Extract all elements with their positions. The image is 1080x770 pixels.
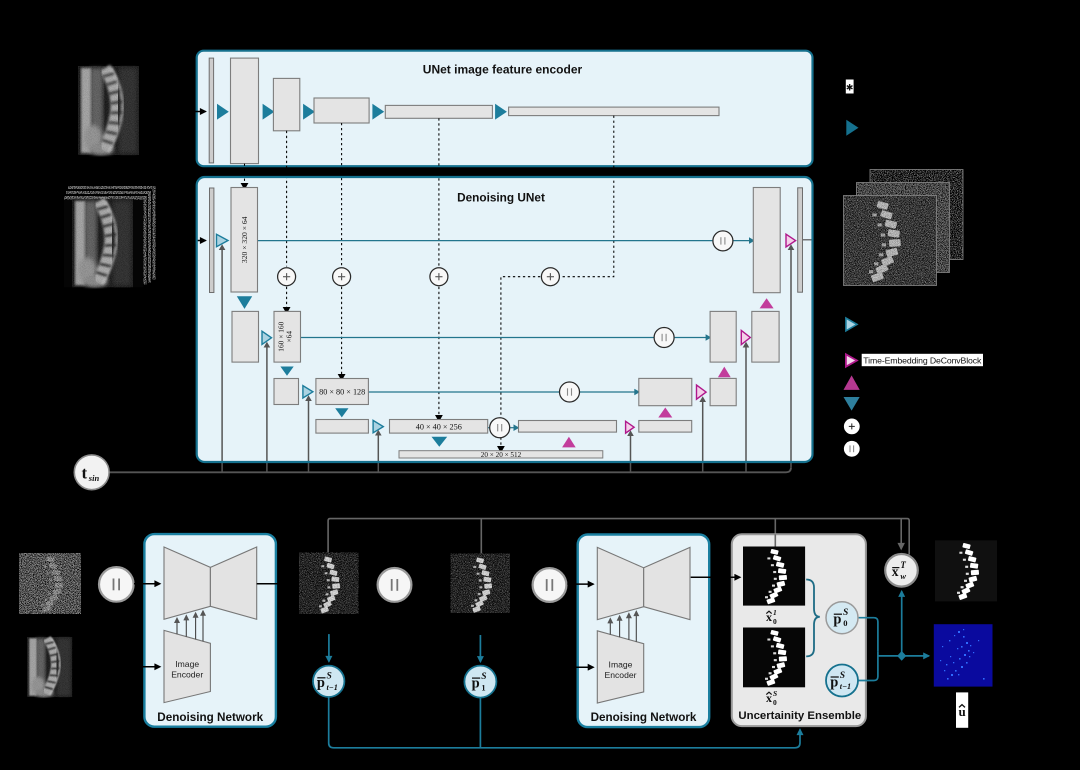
svg-text:0: 0 (843, 618, 847, 628)
svg-text:Denoising UNet: Denoising UNet (457, 191, 545, 205)
svg-text:Time-Embedding DeConvBlock: Time-Embedding DeConvBlock (863, 355, 982, 365)
svg-text:t−1: t−1 (327, 683, 338, 692)
svg-text:S: S (773, 689, 777, 698)
svg-text:320 × 320 × 64: 320 × 320 × 64 (240, 216, 249, 263)
svg-text:0: 0 (773, 698, 777, 707)
svg-text:S: S (481, 672, 486, 682)
svg-text:Image: Image (175, 659, 199, 669)
svg-text:x: x (892, 564, 899, 579)
svg-text:80 × 80 × 128: 80 × 80 × 128 (319, 387, 365, 396)
svg-text:sin: sin (88, 473, 100, 483)
svg-text:S: S (327, 672, 332, 682)
svg-text:1: 1 (773, 608, 777, 617)
svg-text:✱: ✱ (846, 83, 854, 93)
svg-text:Encoder: Encoder (171, 670, 203, 680)
svg-text:S: S (843, 608, 848, 618)
svg-text:Uncertainity Ensemble: Uncertainity Ensemble (738, 710, 861, 722)
svg-text:0: 0 (773, 617, 777, 626)
svg-text:t: t (82, 464, 88, 483)
svg-text:Denoising Network: Denoising Network (157, 711, 263, 724)
svg-text:1: 1 (481, 682, 485, 692)
svg-text:x: x (766, 691, 772, 705)
svg-text:20 × 20 × 512: 20 × 20 × 512 (481, 451, 522, 459)
svg-text:T: T (900, 560, 906, 570)
svg-text:UNet image feature encoder: UNet image feature encoder (423, 63, 583, 77)
svg-text:t−1: t−1 (840, 682, 851, 691)
svg-text:w: w (900, 571, 906, 581)
svg-text:x: x (766, 610, 772, 624)
svg-text:S: S (840, 671, 845, 681)
svg-text:40 × 40 × 256: 40 × 40 × 256 (416, 422, 462, 431)
svg-text:×64: ×64 (285, 331, 294, 343)
